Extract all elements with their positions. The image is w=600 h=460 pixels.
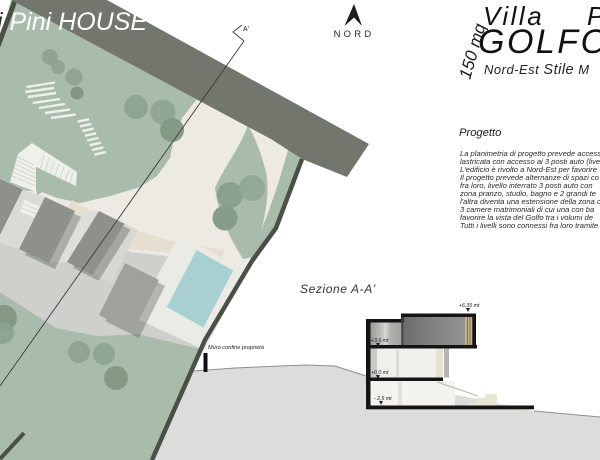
svg-text:+0,0 mt: +0,0 mt	[371, 370, 389, 376]
svg-text:i Pini HOUSE: i Pini HOUSE	[0, 8, 147, 36]
svg-text:A': A'	[243, 26, 249, 33]
svg-text:+3,6 mt: +3,6 mt	[371, 338, 389, 344]
svg-text:NORD: NORD	[334, 29, 375, 40]
svg-text:GOLFO: GOLFO	[478, 23, 600, 61]
svg-text:Progetto: Progetto	[459, 127, 501, 139]
svg-text:Sezione A-A': Sezione A-A'	[300, 282, 376, 296]
svg-text:Muro confine proprietà: Muro confine proprietà	[208, 345, 264, 351]
svg-text:Nord-Est Stile M: Nord-Est Stile M	[484, 62, 590, 78]
svg-text:Tutti i livelli sono connessi: Tutti i livelli sono connessi fra loro t…	[460, 221, 598, 230]
svg-text:- 2,5 mt: - 2,5 mt	[374, 396, 392, 402]
